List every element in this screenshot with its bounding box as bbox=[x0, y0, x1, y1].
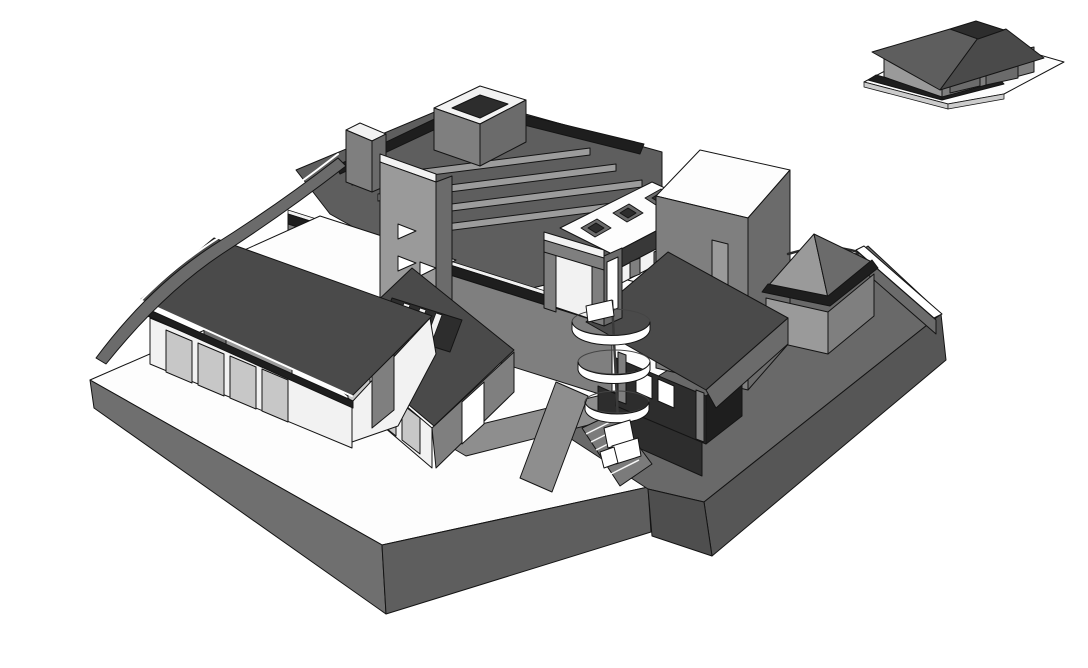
clerestory-mullion-1 bbox=[630, 258, 640, 278]
garage-building bbox=[864, 21, 1064, 109]
chimney-small-front bbox=[346, 130, 372, 192]
right-wing-post-right bbox=[696, 390, 704, 442]
model-viewport bbox=[0, 0, 1088, 668]
model-canvas bbox=[0, 0, 1088, 668]
